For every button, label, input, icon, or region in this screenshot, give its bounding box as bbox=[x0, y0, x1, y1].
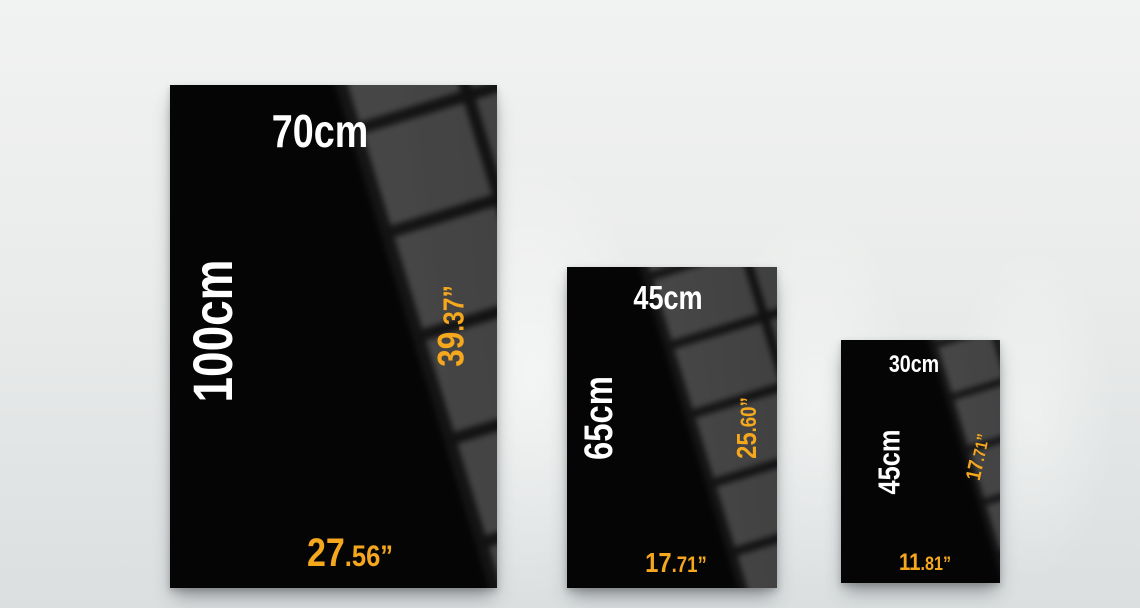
inches-decimal: .60” bbox=[736, 397, 761, 432]
height-cm-label: 100cm bbox=[185, 260, 241, 403]
width-inches-label: 17.71” bbox=[645, 549, 707, 577]
poster-small-45x30: 30cm 45cm 17.71” 11.81” bbox=[841, 340, 1000, 583]
inches-integer: 39 bbox=[431, 332, 472, 367]
height-inches-label: 25.60” bbox=[733, 397, 761, 459]
inches-integer: 17 bbox=[645, 547, 671, 578]
poster-large-100x70: 70cm 100cm 39.37” 27.56” bbox=[170, 85, 497, 588]
width-cm-label: 70cm bbox=[272, 108, 368, 154]
width-cm-label: 30cm bbox=[889, 353, 939, 377]
height-cm-label: 45cm bbox=[873, 429, 904, 494]
height-cm-label: 65cm bbox=[579, 376, 619, 460]
inches-decimal: .56” bbox=[345, 540, 393, 573]
inches-decimal: .81” bbox=[921, 554, 952, 575]
width-cm-label: 45cm bbox=[633, 281, 702, 314]
inches-decimal: .37” bbox=[439, 286, 471, 333]
height-inches-label: 39.37” bbox=[433, 286, 470, 368]
inches-integer: 11 bbox=[899, 549, 921, 576]
width-inches-label: 27.56” bbox=[307, 533, 393, 573]
poster-medium-65x45: 45cm 65cm 25.60” 17.71” bbox=[567, 267, 777, 588]
inches-decimal: .71” bbox=[672, 552, 707, 577]
inches-integer: 25 bbox=[731, 432, 762, 458]
width-inches-label: 11.81” bbox=[899, 551, 951, 575]
inches-integer: 27 bbox=[307, 531, 345, 575]
